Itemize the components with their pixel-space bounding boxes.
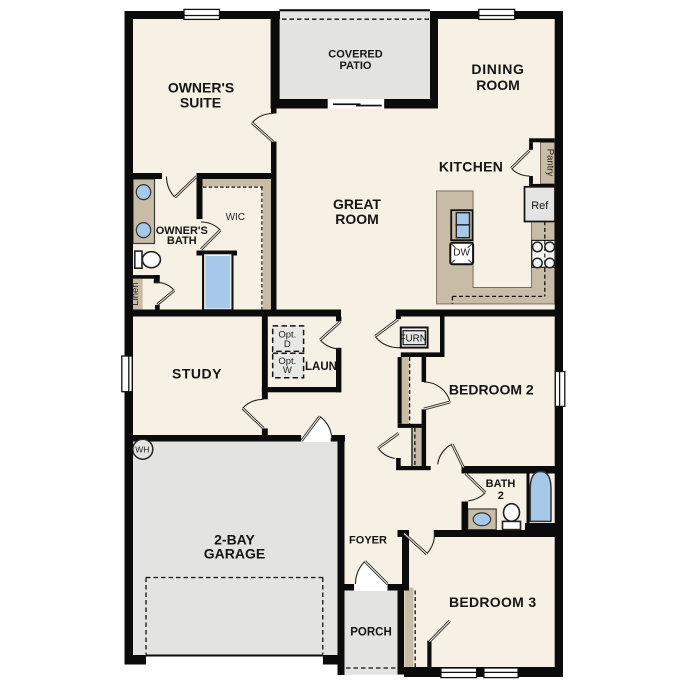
svg-text:LAUN: LAUN [305, 361, 337, 373]
svg-text:BATH: BATH [486, 478, 516, 490]
svg-text:STUDY: STUDY [172, 366, 222, 382]
svg-text:BATH: BATH [167, 235, 197, 247]
svg-text:W: W [283, 365, 292, 376]
svg-text:BEDROOM 2: BEDROOM 2 [449, 381, 534, 397]
svg-text:Ref: Ref [531, 200, 549, 212]
svg-text:D: D [284, 339, 291, 350]
svg-text:Pantry: Pantry [545, 149, 556, 177]
svg-text:GARAGE: GARAGE [204, 546, 265, 562]
svg-text:FOYER: FOYER [349, 535, 387, 547]
svg-text:ROOM: ROOM [335, 211, 379, 227]
svg-text:FURN: FURN [400, 333, 427, 344]
svg-text:DINING: DINING [471, 61, 524, 77]
svg-text:Linen: Linen [130, 282, 141, 305]
svg-text:COVERED: COVERED [328, 49, 382, 61]
svg-text:ROOM: ROOM [476, 77, 520, 93]
svg-text:PATIO: PATIO [340, 60, 372, 72]
svg-text:WIC: WIC [226, 212, 245, 223]
svg-text:PORCH: PORCH [350, 626, 392, 638]
svg-text:2: 2 [498, 490, 504, 502]
svg-text:BEDROOM 3: BEDROOM 3 [449, 594, 537, 610]
svg-text:GREAT: GREAT [333, 196, 381, 212]
svg-text:DW: DW [453, 248, 470, 259]
svg-text:OWNER'S: OWNER'S [168, 80, 234, 96]
svg-text:SUITE: SUITE [180, 94, 221, 110]
svg-text:WH: WH [135, 444, 149, 454]
svg-text:KITCHEN: KITCHEN [439, 158, 503, 174]
